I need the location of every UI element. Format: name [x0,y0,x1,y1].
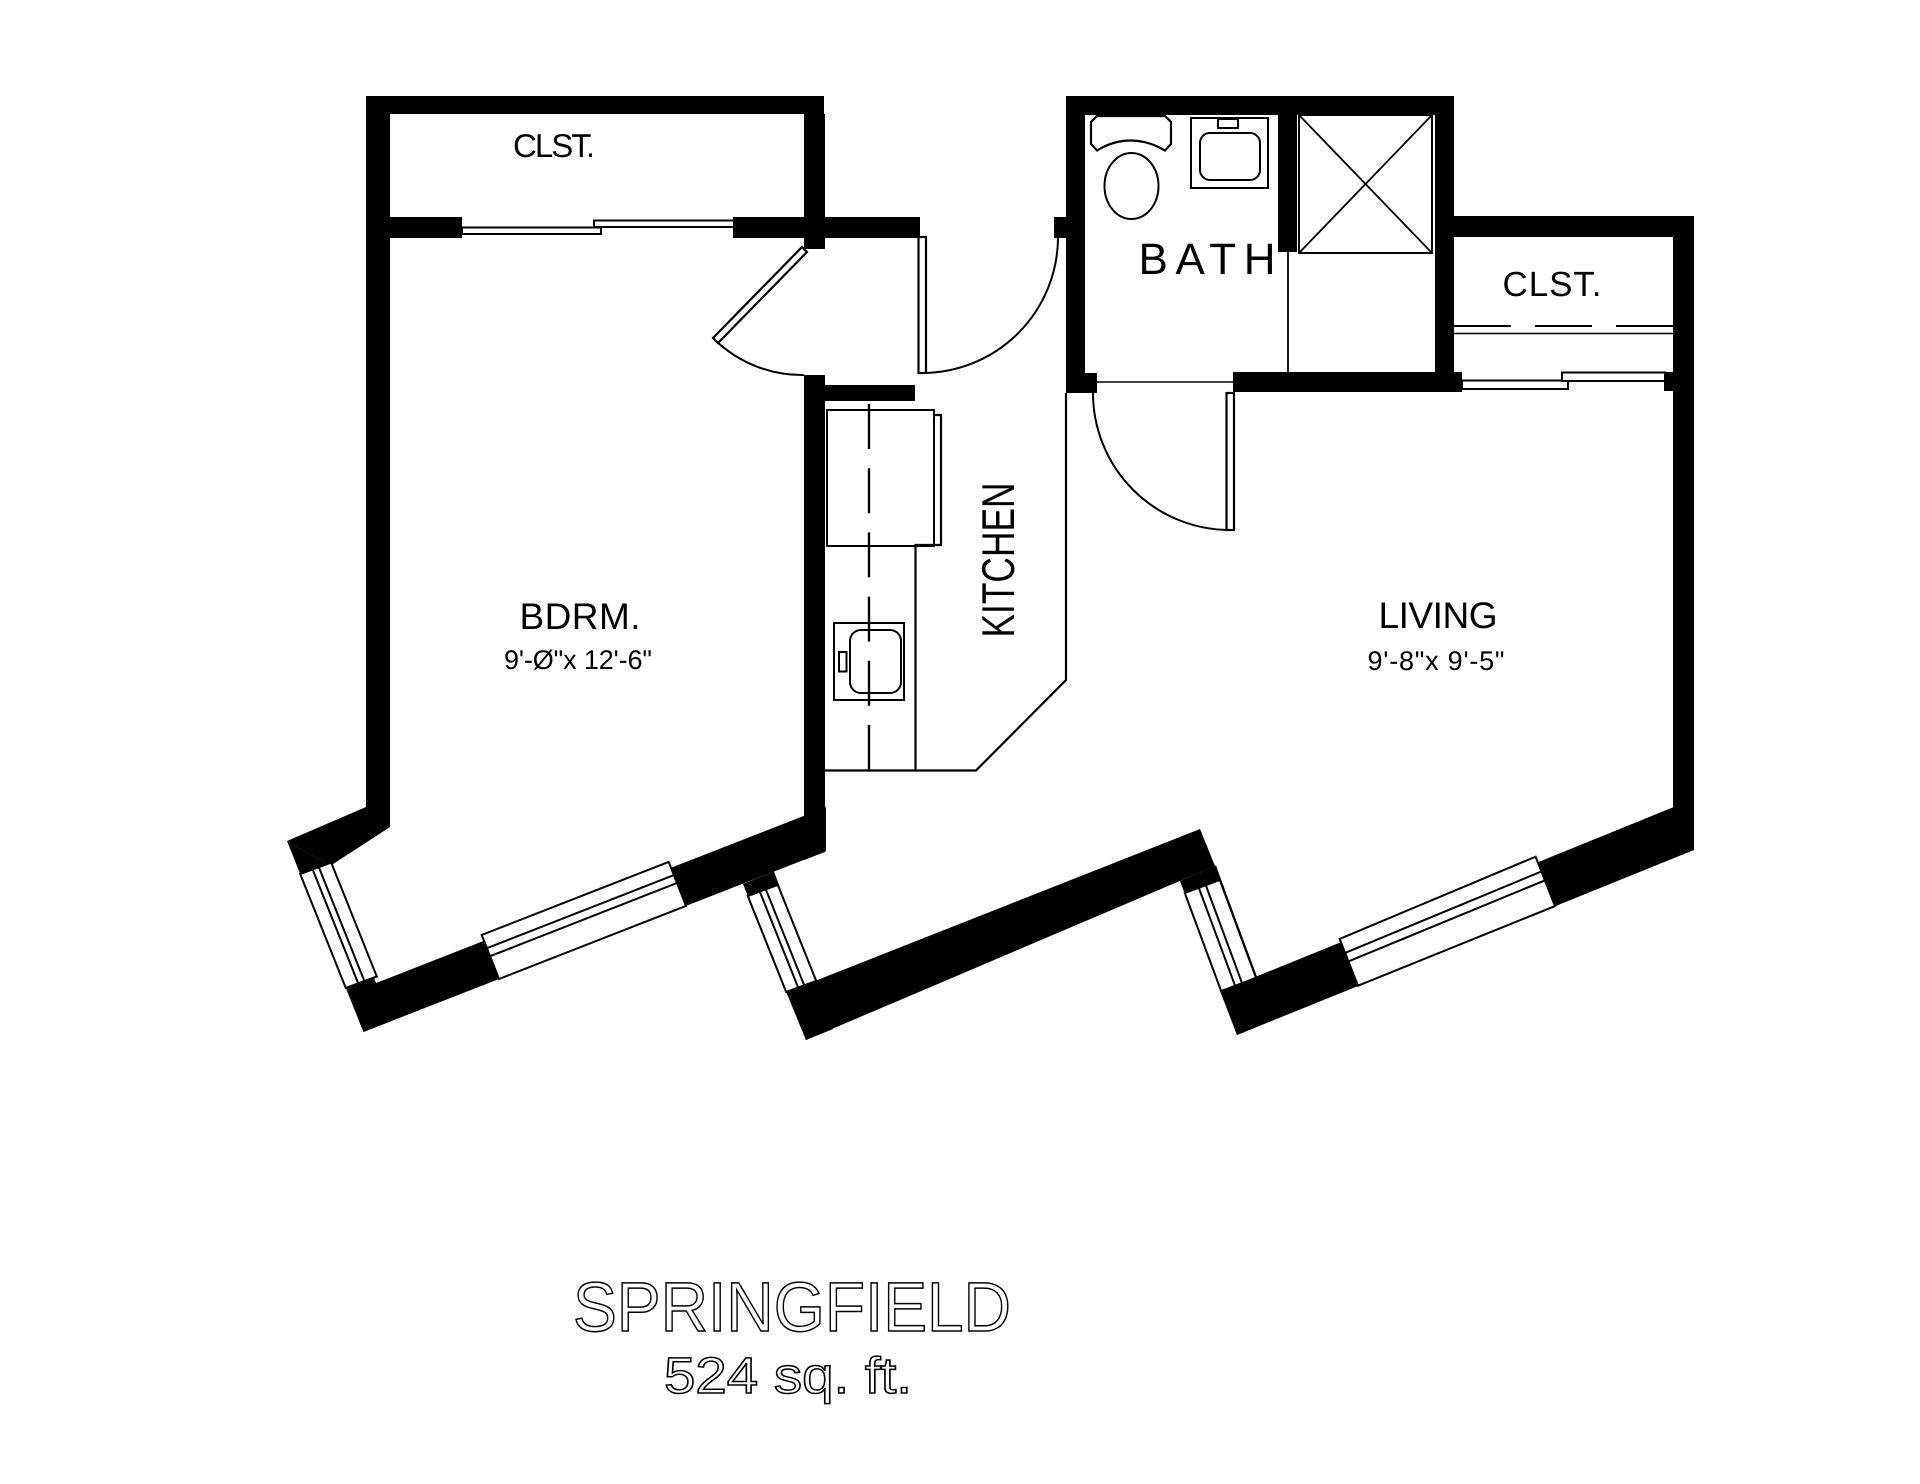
svg-text:9'-8"x 9'-5": 9'-8"x 9'-5" [1368,646,1505,676]
svg-text:524 sq. ft.: 524 sq. ft. [664,1347,912,1404]
svg-text:CLST.: CLST. [513,127,595,164]
svg-text:9'-Ø"x 12'-6": 9'-Ø"x 12'-6" [504,645,652,675]
svg-text:SPRINGFIELD: SPRINGFIELD [573,1268,1011,1346]
svg-text:KITCHEN: KITCHEN [972,483,1024,638]
svg-text:BDRM.: BDRM. [520,596,641,637]
svg-text:LIVING: LIVING [1379,595,1498,636]
svg-text:CLST.: CLST. [1503,265,1602,304]
